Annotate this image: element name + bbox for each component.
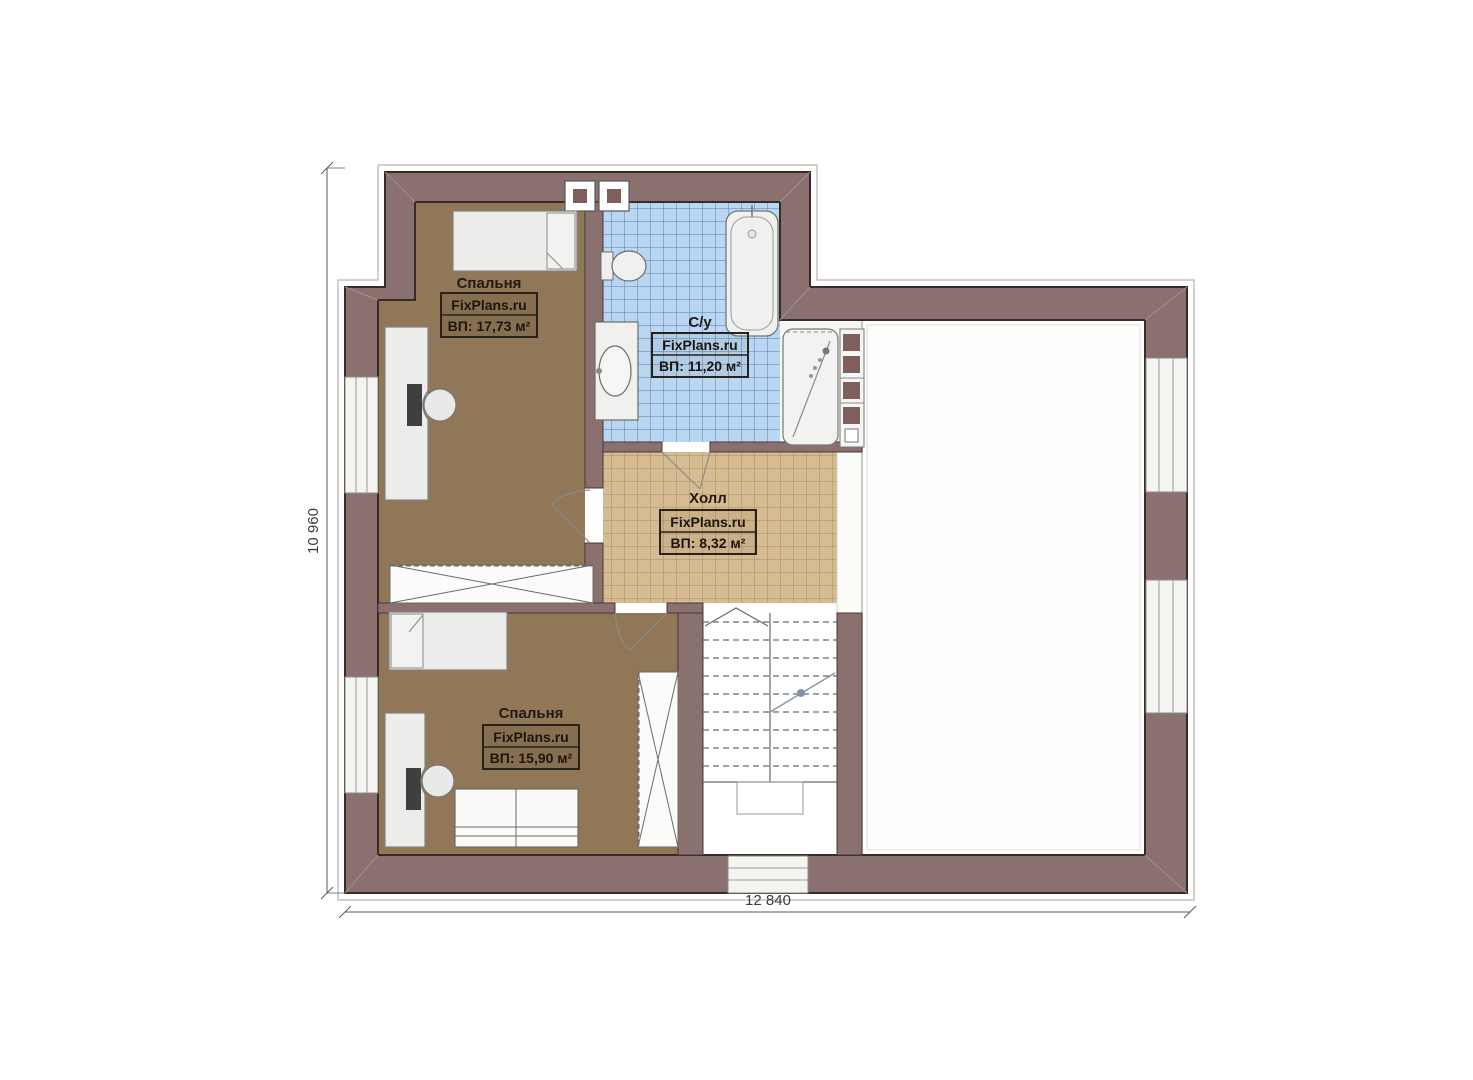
room-area: ВП: 15,90 м² (490, 750, 573, 766)
window-left-lower (345, 677, 378, 793)
toilet-icon (601, 251, 646, 281)
watermark-text: FixPlans.ru (670, 514, 745, 530)
floor-plan-drawing: Спальня FixPlans.ru ВП: 17,73 м² С/у Fix… (0, 0, 1473, 1080)
window-right-lower (1146, 580, 1187, 713)
dimension-height-value: 10 960 (305, 508, 322, 554)
room-area: ВП: 11,20 м² (659, 358, 741, 374)
room-title: Спальня (457, 275, 522, 292)
tall-wardrobe-icon (638, 672, 678, 847)
sink-vanity-icon (595, 322, 638, 420)
wall-bedroom2-stairs (678, 613, 703, 855)
room-title: С/у (688, 314, 712, 331)
wardrobe-icon (390, 565, 593, 603)
dimension-left: 10 960 (305, 162, 345, 899)
room-title: Спальня (499, 705, 564, 722)
dimension-bottom: 12 840 (339, 892, 1196, 918)
room-title: Холл (689, 490, 727, 507)
wall-stairs-bigroom (837, 613, 862, 855)
room-area: ВП: 8,32 м² (671, 535, 746, 551)
watermark-text: FixPlans.ru (493, 729, 568, 745)
watermark-text: FixPlans.ru (451, 297, 526, 313)
watermark-text: FixPlans.ru (662, 337, 737, 353)
dimension-width-value: 12 840 (745, 892, 791, 909)
chimney-block-icon (565, 181, 595, 211)
stairwell-open-strip (837, 452, 862, 613)
stair-walk-dot (797, 689, 805, 697)
bed-icon (453, 211, 577, 271)
wall-bath-hall-left (603, 442, 662, 452)
monitor-icon (407, 384, 422, 426)
wall-bedrooms-right (667, 603, 703, 613)
dresser-icon (455, 789, 578, 847)
shower-icon (783, 329, 838, 445)
window-right-upper (1146, 358, 1187, 492)
shelf-unit-icon (840, 329, 864, 447)
wall-bath-hall-right (710, 442, 862, 452)
room-area: ВП: 17,73 м² (448, 318, 531, 334)
monitor-icon (406, 768, 421, 810)
chair-icon (421, 765, 454, 797)
big-room-floor (862, 320, 1145, 855)
window-left-upper (345, 377, 378, 493)
bathtub-icon (726, 205, 778, 336)
window-bottom (728, 856, 808, 893)
chair-icon (423, 389, 456, 421)
chimney-block-icon (599, 181, 629, 211)
bed-icon (389, 612, 507, 670)
floor-plan-page: Спальня FixPlans.ru ВП: 17,73 м² С/у Fix… (0, 0, 1473, 1080)
